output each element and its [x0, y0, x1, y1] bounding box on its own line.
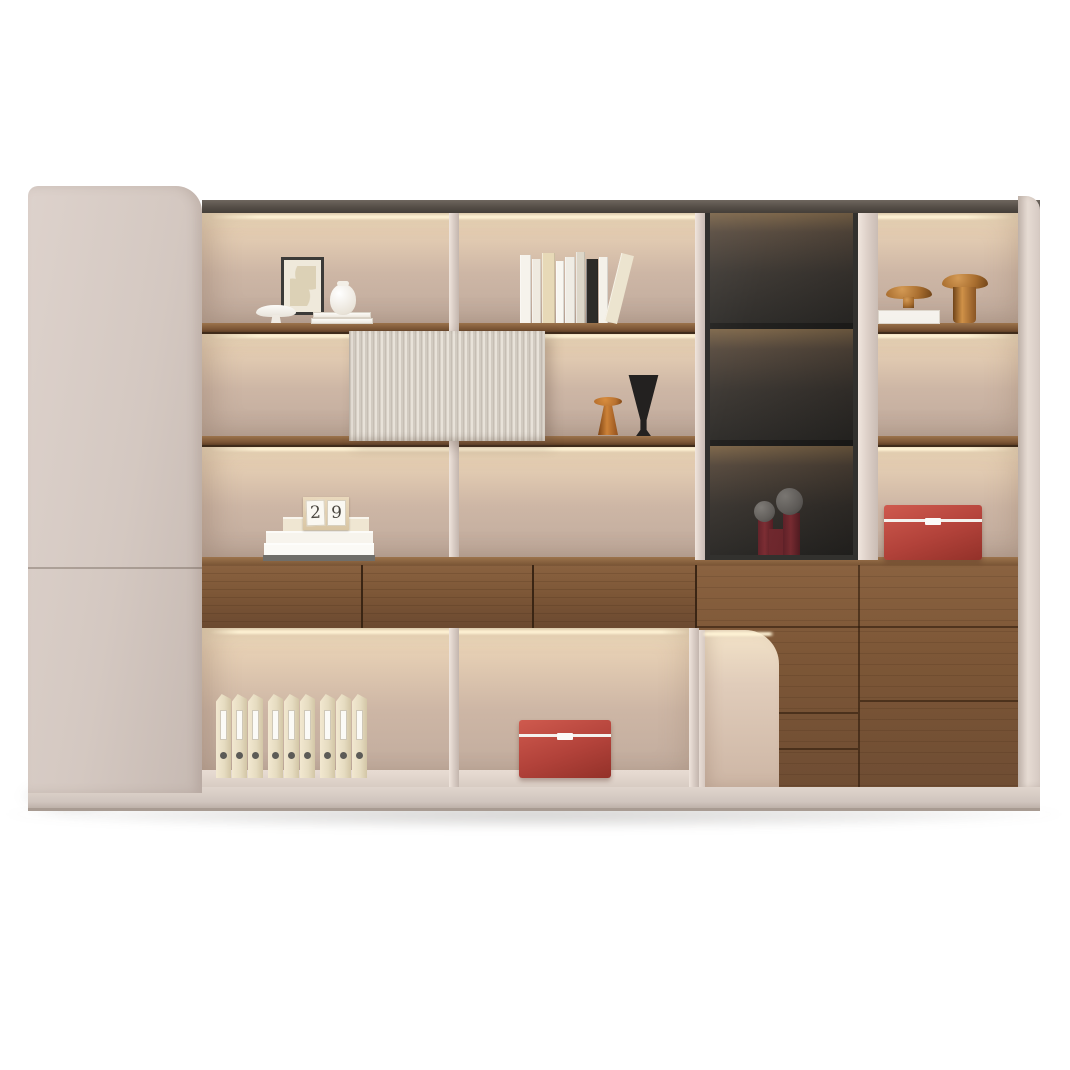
cabinet-right-stile	[858, 207, 878, 560]
binder-grommet	[340, 752, 347, 759]
white-round-vase	[330, 284, 356, 315]
calendar-digit-card: 9	[327, 500, 346, 526]
led-strip-niche	[702, 632, 774, 636]
file-binder	[300, 694, 315, 778]
cabinet-left-stile	[695, 207, 705, 560]
wood-block-seam-top	[697, 626, 1023, 628]
thin-white-book-2	[311, 318, 373, 324]
bronze-pedestal-bowl-small-stem	[903, 297, 914, 308]
glass-sheen	[710, 212, 853, 555]
wood-block-seam-mid1	[779, 712, 858, 714]
binder-label	[236, 710, 243, 740]
led-strip-row1	[210, 215, 1015, 219]
door-seam	[28, 567, 202, 569]
binder-label	[272, 710, 279, 740]
book-spine	[565, 257, 575, 323]
binder-grommet	[220, 752, 227, 759]
binder-grommet	[324, 752, 331, 759]
book-spine	[542, 253, 555, 323]
wood-block-seam-mid2	[779, 748, 858, 750]
binder-label	[324, 710, 331, 740]
bronze-pedestal-bowl-large-stem	[953, 287, 976, 323]
wood-block-seam-vertical	[858, 565, 860, 787]
art-swirl	[290, 266, 316, 306]
drawer-seam-2	[532, 565, 534, 628]
book-spine	[520, 255, 531, 323]
binder-label	[304, 710, 311, 740]
file-binder	[268, 694, 283, 778]
red-box-clasp	[557, 733, 573, 740]
file-binder	[232, 694, 247, 778]
file-binder	[336, 694, 351, 778]
file-binder	[320, 694, 335, 778]
white-footed-bowl-foot	[271, 315, 281, 323]
right-side-panel	[1018, 196, 1040, 787]
wood-calendar-block: 2 9	[303, 497, 349, 530]
binder-label	[220, 710, 227, 740]
file-binder	[248, 694, 263, 778]
red-box-clasp	[925, 518, 941, 525]
red-storage-box-shelf	[884, 505, 982, 560]
shelf-1	[202, 323, 1023, 334]
bottom-divider-2	[689, 628, 699, 787]
binder-grommet	[356, 752, 363, 759]
file-binder-row	[216, 694, 376, 778]
wood-block-seam-right	[860, 700, 1023, 702]
book-spine	[576, 252, 585, 323]
file-binder	[284, 694, 299, 778]
orange-pedestal-cup	[594, 397, 622, 406]
file-binder	[216, 694, 231, 778]
binder-label	[340, 710, 347, 740]
book-spine	[556, 261, 564, 323]
book-spine	[586, 259, 598, 323]
binder-grommet	[252, 752, 259, 759]
binder-grommet	[288, 752, 295, 759]
binder-label	[252, 710, 259, 740]
glass-door-cabinet	[705, 207, 858, 560]
arched-niche	[700, 630, 779, 787]
led-strip-row2	[210, 334, 1015, 338]
bottom-divider-1	[449, 628, 459, 787]
red-storage-box-bottom	[519, 720, 611, 778]
white-round-vase-lip	[337, 281, 349, 286]
stacked-book-mid	[266, 531, 373, 543]
stacked-book-base	[263, 555, 375, 561]
tall-door-panel	[28, 186, 202, 793]
fluted-sliding-door	[349, 331, 545, 441]
drawer-seam-1	[361, 565, 363, 628]
acrylic-display-box	[878, 310, 940, 324]
binder-grommet	[304, 752, 311, 759]
book-spine	[532, 259, 541, 323]
product-photo-stage: 2 9	[0, 0, 1070, 1070]
binder-label	[288, 710, 295, 740]
calendar-digit-card: 2	[306, 500, 326, 527]
led-strip-row3	[210, 447, 1015, 451]
top-trim	[202, 200, 1040, 213]
binder-grommet	[236, 752, 243, 759]
shelf-2	[202, 436, 1023, 447]
binder-grommet	[272, 752, 279, 759]
stacked-book-bottom	[264, 543, 374, 555]
file-binder	[352, 694, 367, 778]
binder-label	[356, 710, 363, 740]
